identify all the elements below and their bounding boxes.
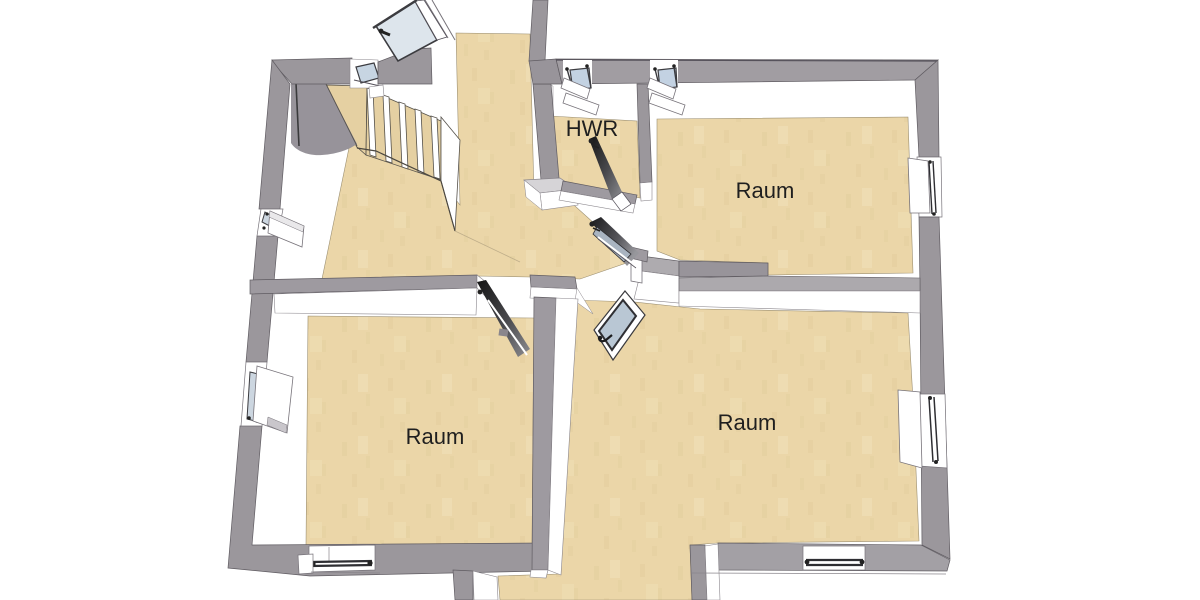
svg-text:Raum: Raum	[718, 410, 777, 435]
svg-text:Raum: Raum	[406, 424, 465, 449]
svg-text:Raum: Raum	[736, 178, 795, 203]
svg-text:HWR: HWR	[566, 116, 619, 141]
